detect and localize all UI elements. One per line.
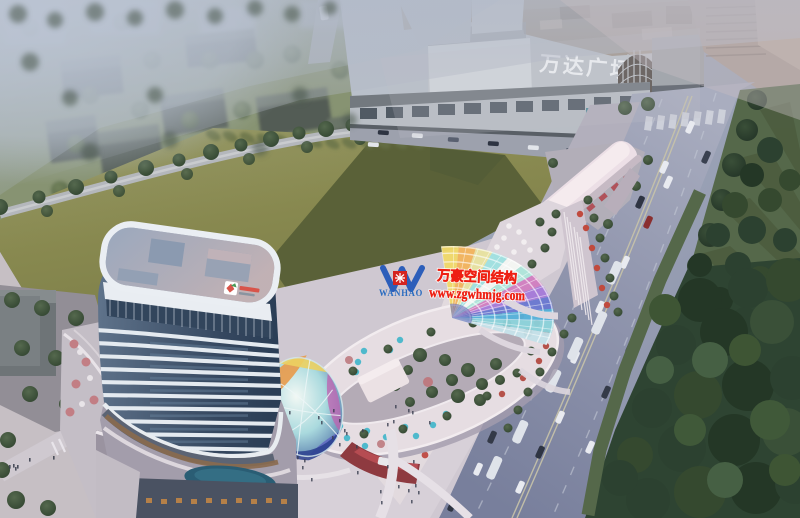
svg-text:WANHAO: WANHAO — [379, 289, 423, 299]
svg-text:万豪空间结构: 万豪空间结构 — [436, 267, 517, 286]
svg-text:www.zgwhmjg.com: www.zgwhmjg.com — [429, 285, 525, 304]
